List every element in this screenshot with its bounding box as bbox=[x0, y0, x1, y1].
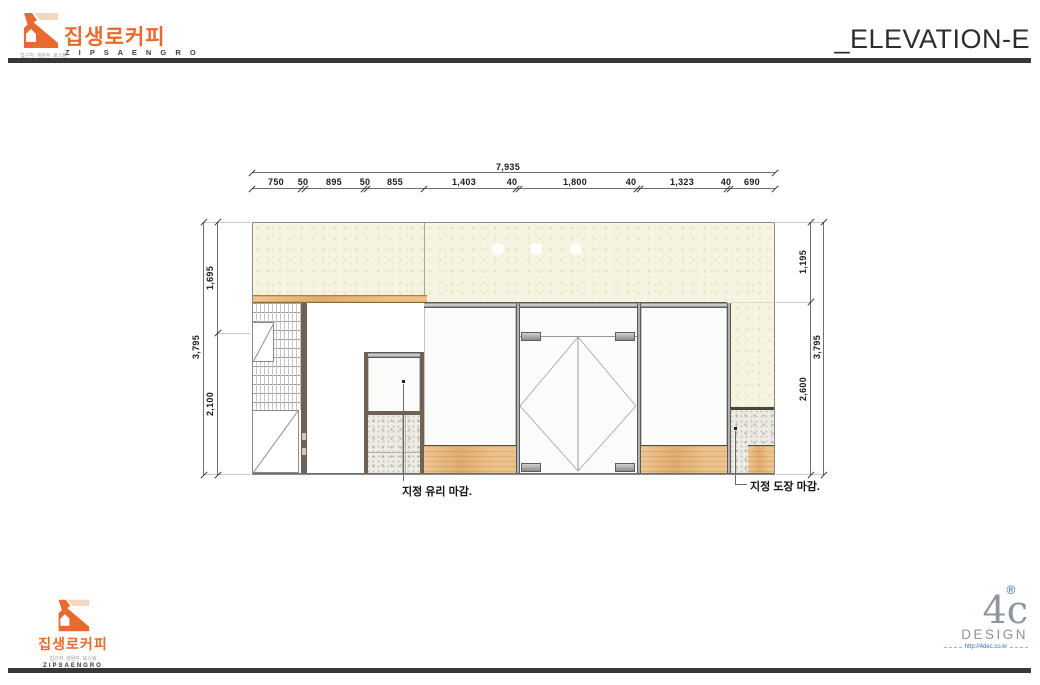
dim-segment: 690 bbox=[744, 177, 760, 187]
brand-tagline: 집근처. 생원두. 로스팅 bbox=[18, 655, 128, 662]
glass-finish-label: 지정 유리 마감. bbox=[402, 483, 472, 499]
brand-name-korean: 집생로커피 bbox=[18, 634, 128, 654]
dim-segment: 50 bbox=[360, 177, 371, 187]
dim-overall-width: 7,935 bbox=[496, 162, 520, 172]
brand-name-korean: 집생로커피 bbox=[64, 21, 166, 51]
registered-mark-icon: ® bbox=[1007, 583, 1016, 597]
designer-logo: 4c ® DESIGN http://4dec.co.kr bbox=[944, 591, 1028, 650]
brand-name-romanized: Z I P S A E N G R O bbox=[65, 48, 199, 57]
dim-line-right-overall bbox=[823, 222, 824, 475]
dim-segment: 855 bbox=[387, 177, 403, 187]
leader-dot bbox=[734, 427, 737, 430]
dim-segment: 50 bbox=[298, 177, 309, 187]
dim-segment: 895 bbox=[326, 177, 342, 187]
leader-line bbox=[735, 431, 736, 484]
footer-logo: 집생로커피 집근처. 생원두. 로스팅 ZIPSAENGRO bbox=[18, 597, 128, 667]
dim-left-lower: 2,100 bbox=[205, 392, 215, 416]
dim-line-right-split bbox=[810, 222, 811, 475]
dim-segment: 1,800 bbox=[563, 177, 587, 187]
dim-segment: 40 bbox=[721, 177, 732, 187]
designer-url: http://4dec.co.kr bbox=[965, 644, 1008, 650]
header-rule bbox=[8, 58, 1031, 63]
url-rule bbox=[944, 647, 962, 648]
dim-right-lower: 2,600 bbox=[798, 377, 808, 401]
dim-extension bbox=[776, 474, 823, 475]
designer-name: 4c bbox=[983, 588, 1028, 632]
dim-right-upper: 1,195 bbox=[798, 250, 808, 274]
dim-segment: 40 bbox=[626, 177, 637, 187]
sheet-title: _ELEVATION-E bbox=[834, 24, 1030, 55]
dim-segment: 40 bbox=[507, 177, 518, 187]
dim-line-left-split bbox=[217, 222, 218, 475]
dim-segment: 750 bbox=[268, 177, 284, 187]
dim-line-left-overall bbox=[203, 222, 204, 475]
dim-line-overall bbox=[252, 172, 775, 173]
header-logo: 집생로커피 Z I P S A E N G R O 집근처. 생원두. 로스팅 bbox=[18, 8, 218, 58]
dim-extension bbox=[776, 302, 810, 303]
dim-segment: 1,403 bbox=[452, 177, 476, 187]
footer-rule bbox=[8, 668, 1031, 673]
brand-mark-icon bbox=[20, 10, 60, 50]
url-rule bbox=[1010, 647, 1028, 648]
elevation-outline bbox=[252, 222, 775, 475]
dim-extension bbox=[203, 474, 250, 475]
dim-left-overall: 3,795 bbox=[191, 335, 201, 359]
leader-line bbox=[403, 384, 404, 481]
dim-extension bbox=[203, 222, 250, 223]
dim-extension bbox=[776, 222, 823, 223]
leader-dot bbox=[402, 380, 405, 383]
paint-finish-label: 지정 도장 마감. bbox=[750, 478, 820, 494]
leader-line bbox=[735, 484, 747, 485]
brand-mark-icon bbox=[55, 597, 91, 633]
dim-right-overall: 3,795 bbox=[812, 335, 822, 359]
dim-extension bbox=[217, 333, 250, 334]
dim-segment: 1,323 bbox=[670, 177, 694, 187]
dim-left-upper: 1,695 bbox=[205, 266, 215, 290]
